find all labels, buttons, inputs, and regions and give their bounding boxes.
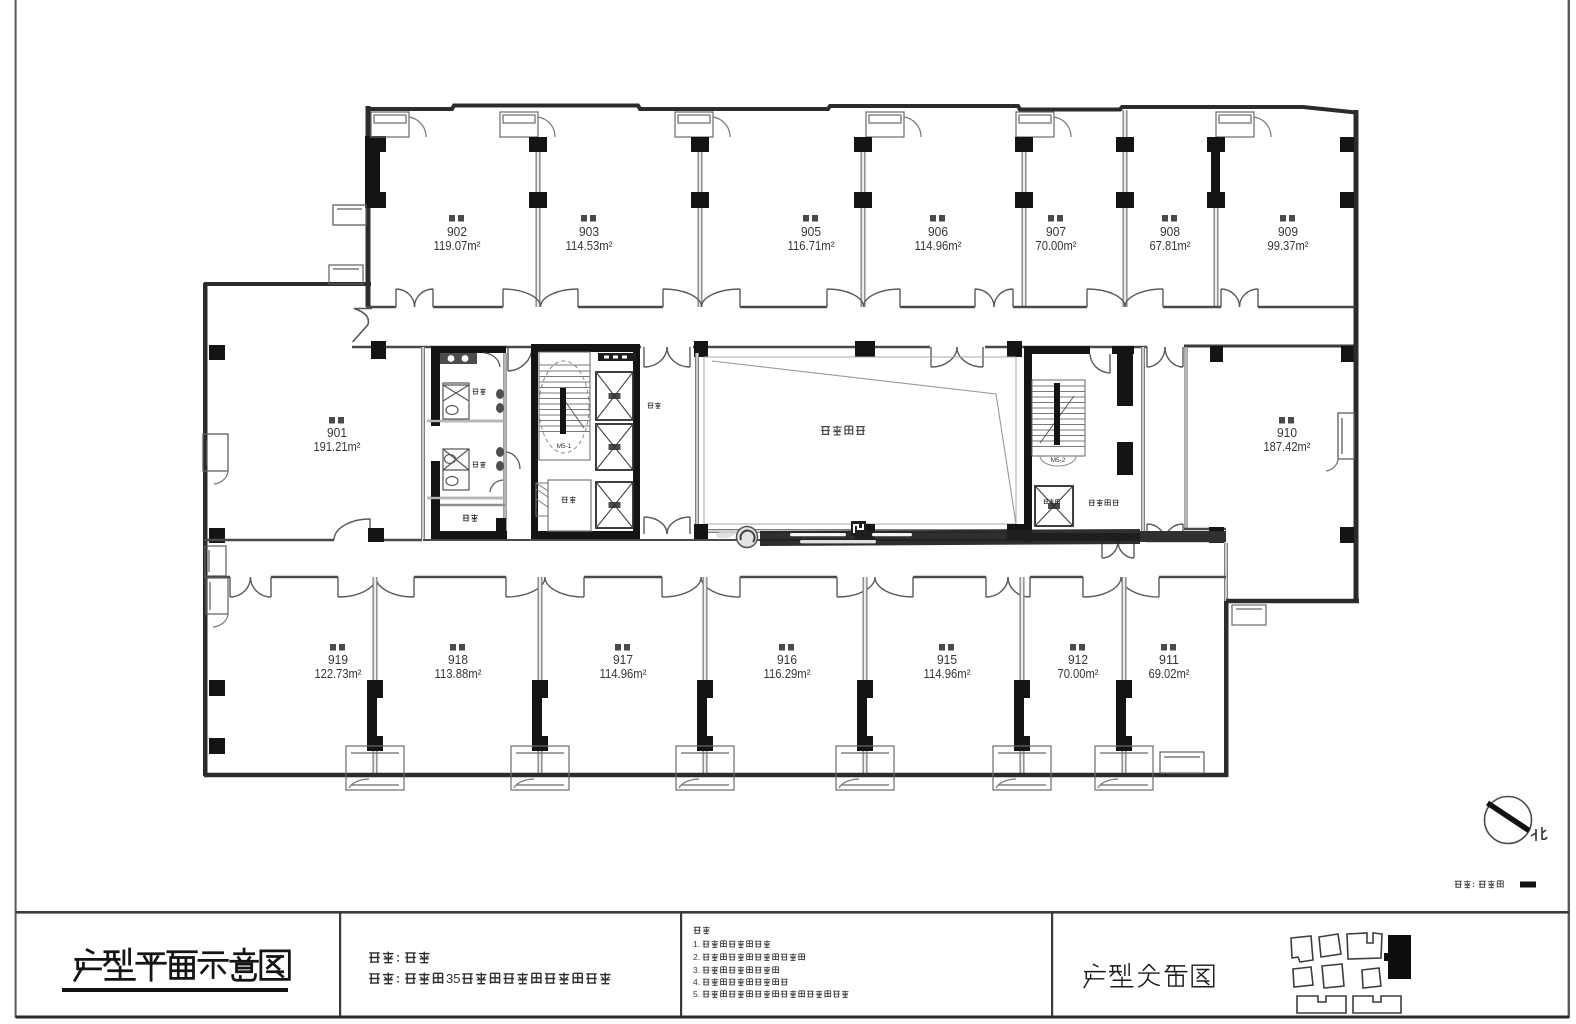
- svg-text:911: 911: [1159, 653, 1179, 667]
- svg-text:903: 903: [579, 225, 599, 239]
- svg-text:187.42m²: 187.42m²: [1264, 440, 1311, 454]
- svg-text:122.73m²: 122.73m²: [315, 667, 362, 681]
- svg-text:69.02m²: 69.02m²: [1149, 667, 1190, 681]
- svg-text:918: 918: [448, 653, 468, 667]
- svg-text:906: 906: [928, 225, 948, 239]
- svg-text:916: 916: [777, 653, 797, 667]
- svg-text:917: 917: [613, 653, 633, 667]
- svg-text:191.21m²: 191.21m²: [314, 440, 361, 454]
- svg-text:919: 919: [328, 653, 348, 667]
- svg-text:70.00m²: 70.00m²: [1036, 239, 1077, 253]
- svg-text:5.: 5.: [693, 989, 700, 999]
- svg-text:905: 905: [801, 225, 821, 239]
- svg-text:114.53m²: 114.53m²: [566, 239, 613, 253]
- svg-text:99.37m²: 99.37m²: [1268, 239, 1309, 253]
- svg-text:70.00m²: 70.00m²: [1058, 667, 1099, 681]
- svg-text:116.71m²: 116.71m²: [788, 239, 835, 253]
- svg-text:902: 902: [447, 225, 467, 239]
- svg-text:909: 909: [1278, 225, 1298, 239]
- svg-text:910: 910: [1277, 426, 1297, 440]
- svg-text:116.29m²: 116.29m²: [764, 667, 811, 681]
- svg-text:3.: 3.: [693, 965, 700, 975]
- svg-text:M5-1: M5-1: [557, 443, 572, 450]
- svg-text:2.: 2.: [693, 952, 700, 962]
- svg-text:35: 35: [446, 971, 460, 986]
- svg-text:67.81m²: 67.81m²: [1150, 239, 1191, 253]
- svg-text:114.96m²: 114.96m²: [915, 239, 962, 253]
- svg-text:908: 908: [1160, 225, 1180, 239]
- svg-text:912: 912: [1068, 653, 1088, 667]
- svg-text:907: 907: [1046, 225, 1066, 239]
- svg-text:4.: 4.: [693, 977, 700, 987]
- svg-text:915: 915: [937, 653, 957, 667]
- svg-text:1.: 1.: [693, 939, 700, 949]
- svg-text:119.07m²: 119.07m²: [434, 239, 481, 253]
- svg-text:114.96m²: 114.96m²: [924, 667, 971, 681]
- svg-text:113.88m²: 113.88m²: [435, 667, 482, 681]
- svg-text:114.96m²: 114.96m²: [600, 667, 647, 681]
- svg-text:901: 901: [327, 426, 347, 440]
- svg-text:M5-2: M5-2: [1051, 457, 1066, 464]
